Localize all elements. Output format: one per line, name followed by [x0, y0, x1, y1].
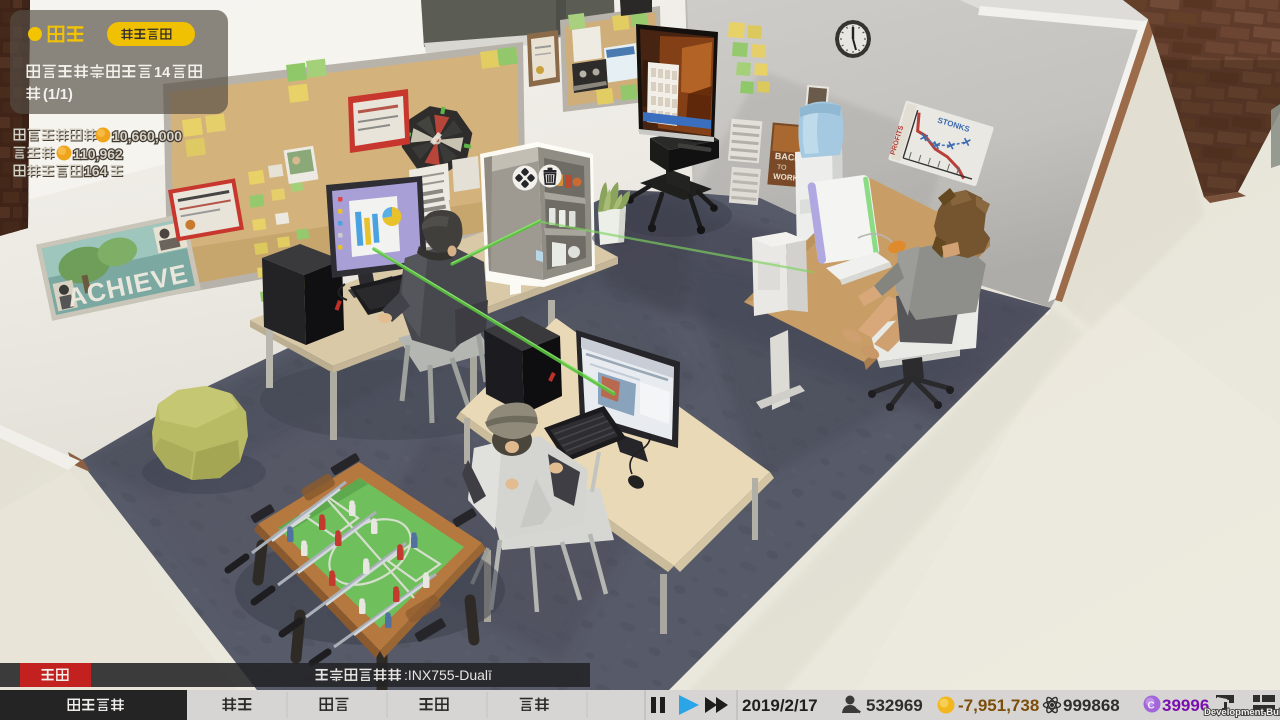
svg-text:C: C	[1148, 701, 1155, 712]
svg-text:164: 164	[84, 163, 108, 179]
svg-text:14: 14	[154, 65, 170, 81]
svg-text:999868: 999868	[1063, 696, 1120, 715]
svg-text:39996: 39996	[1162, 696, 1209, 715]
svg-text:Development Build: Development Build	[1204, 707, 1280, 718]
svg-text:10,660,000: 10,660,000	[112, 128, 182, 144]
svg-text:532969: 532969	[866, 696, 923, 715]
svg-text:TO: TO	[777, 164, 788, 172]
svg-text:-7,951,738: -7,951,738	[958, 696, 1039, 715]
svg-text:(1/1): (1/1)	[43, 87, 73, 103]
svg-text::INX755-Dualī: :INX755-Dualī	[404, 667, 492, 683]
svg-text:2019/2/17: 2019/2/17	[742, 696, 818, 715]
svg-text:110,962: 110,962	[73, 146, 123, 162]
